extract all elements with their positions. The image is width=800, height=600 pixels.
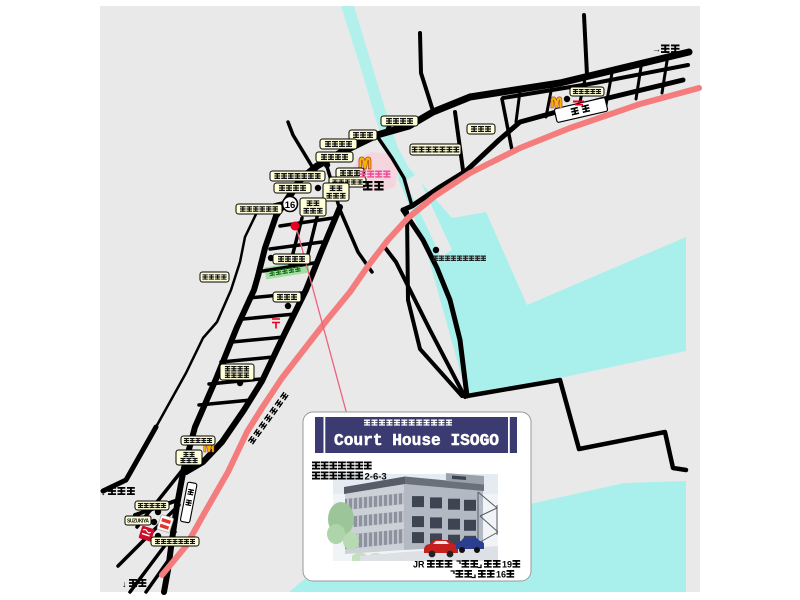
svg-text:2-6-3: 2-6-3 [365, 472, 387, 483]
svg-text:Court House ISOGO: Court House ISOGO [334, 432, 499, 450]
svg-text:19: 19 [502, 560, 512, 570]
svg-text:↓: ↓ [101, 487, 106, 497]
svg-text:16: 16 [285, 200, 296, 211]
svg-text:16: 16 [496, 570, 506, 580]
svg-text:JR: JR [413, 560, 425, 570]
svg-text:SUZUKIYA: SUZUKIYA [127, 519, 149, 525]
svg-text:↓: ↓ [122, 579, 127, 589]
svg-text:→: → [652, 44, 661, 54]
